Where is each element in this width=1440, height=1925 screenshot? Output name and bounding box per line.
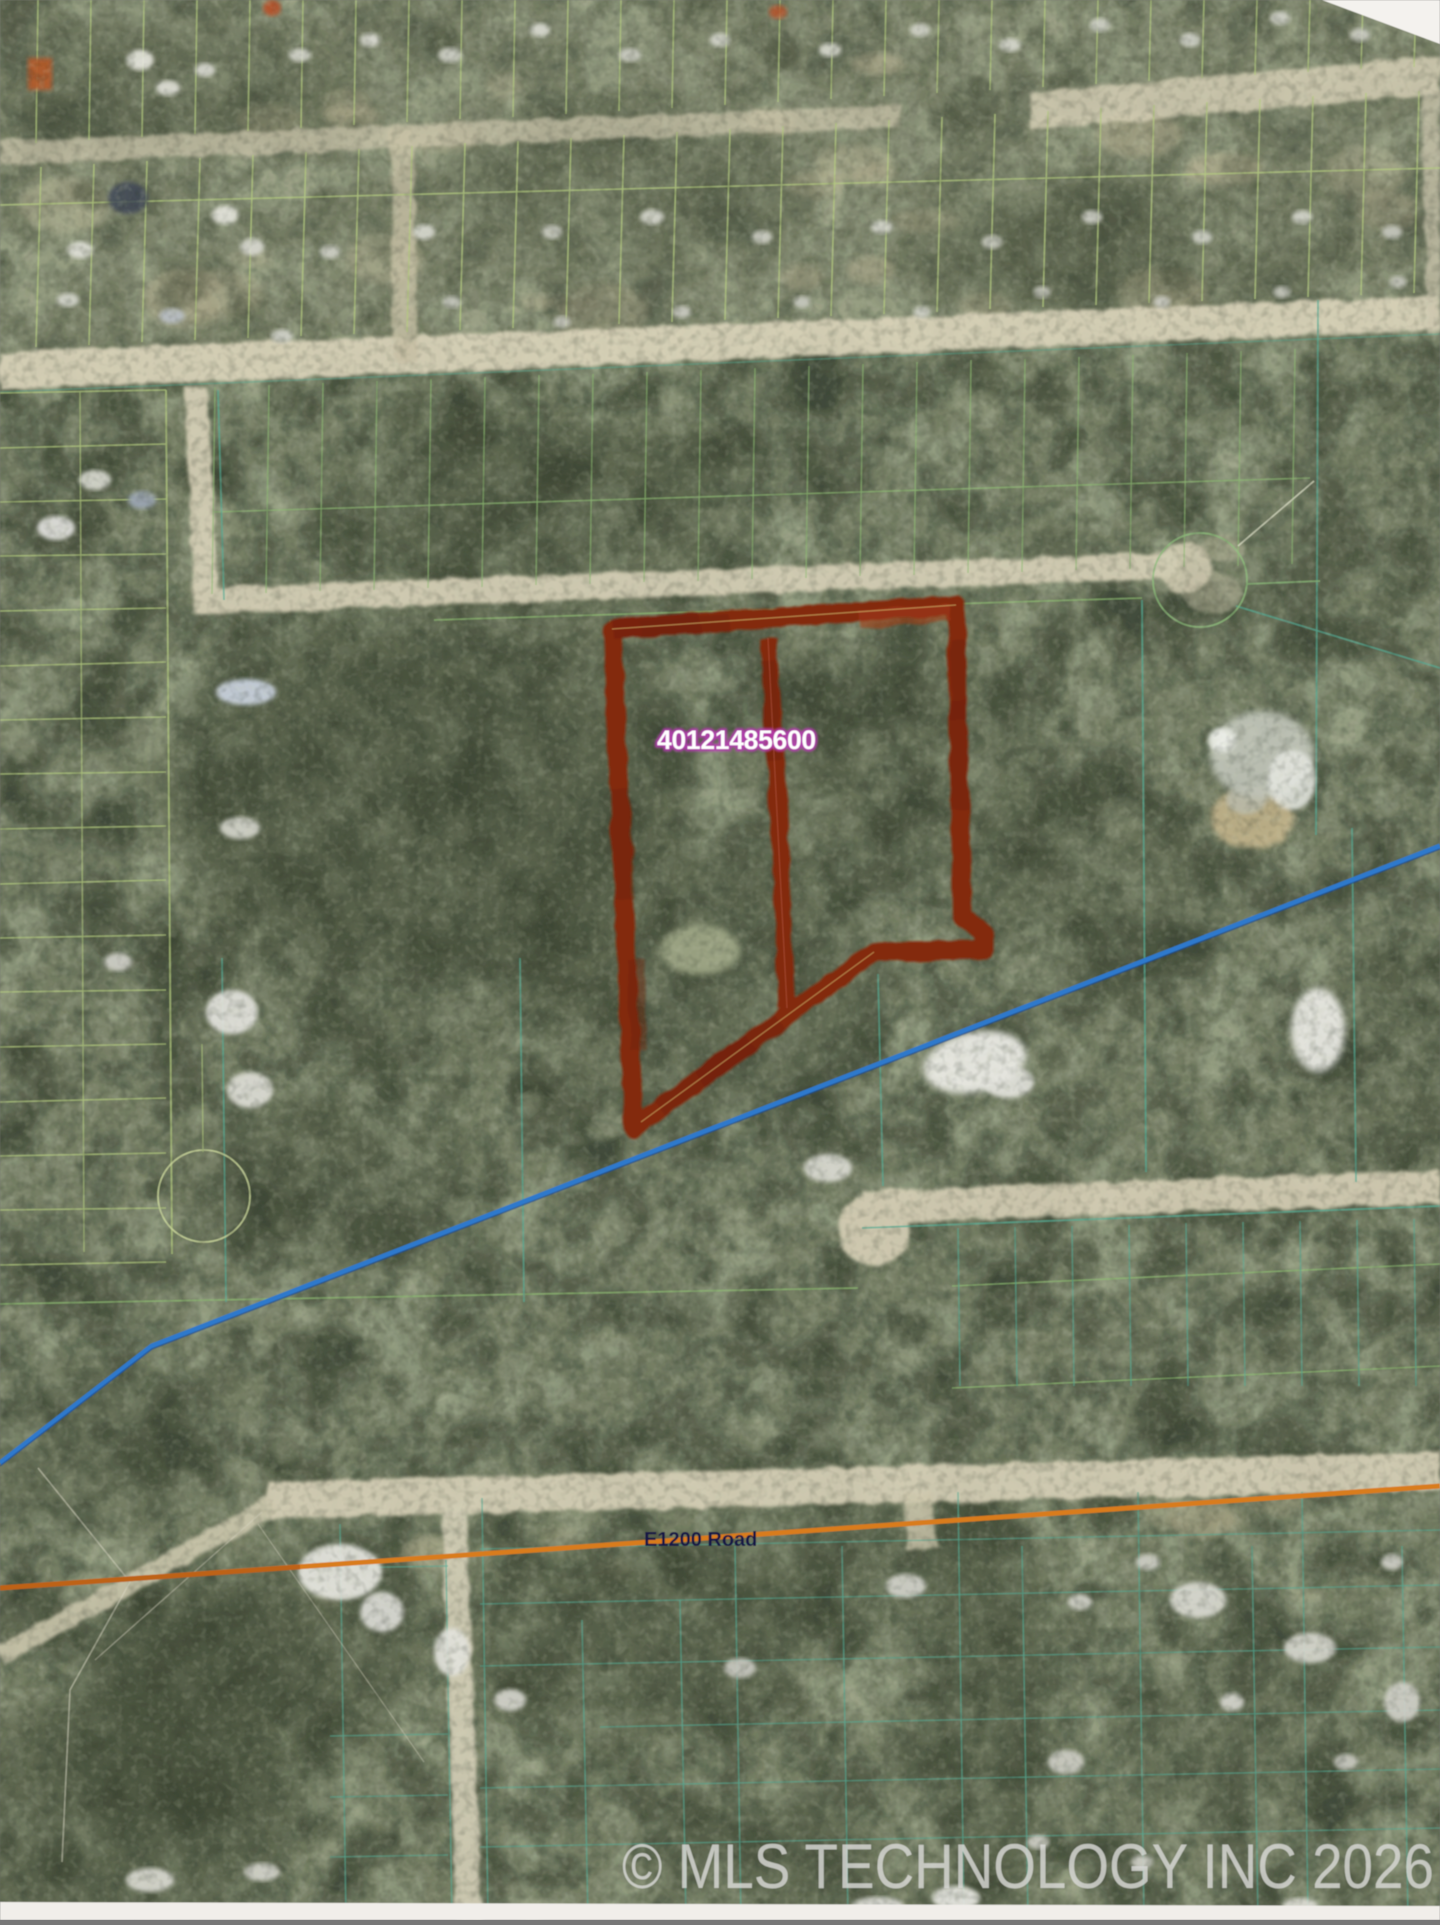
svg-text:40121485600: 40121485600 — [657, 725, 816, 755]
svg-text:E1200 Road: E1200 Road — [644, 1529, 757, 1551]
svg-text:© MLS TECHNOLOGY INC 2026: © MLS TECHNOLOGY INC 2026 — [622, 1832, 1434, 1902]
